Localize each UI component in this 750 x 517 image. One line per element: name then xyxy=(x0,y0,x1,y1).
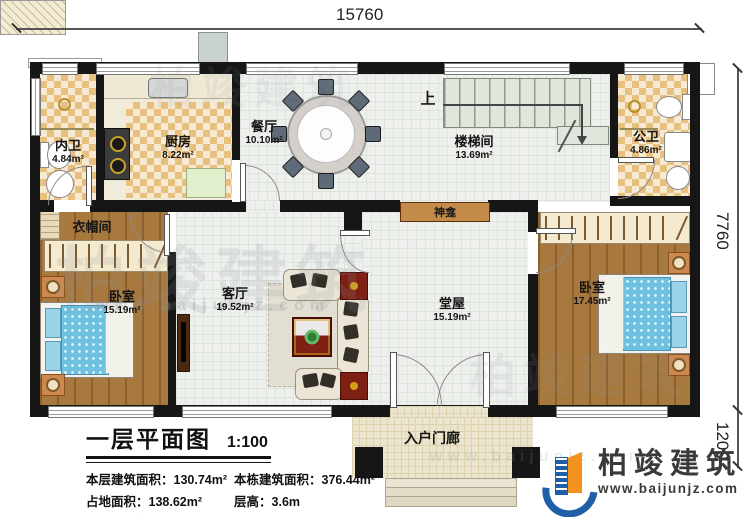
lamp xyxy=(46,280,60,294)
room-label-public-bath: 公卫 4.86m² xyxy=(630,130,662,156)
room-name: 堂屋 xyxy=(439,296,465,311)
dim-width: 15760 xyxy=(332,5,387,25)
title-block: 一层平面图 1:100 本层建筑面积：130.74m² 本栋建筑面积：376.4… xyxy=(86,420,375,517)
lamp xyxy=(672,358,686,372)
dim-height: 7760 xyxy=(712,208,732,254)
burner xyxy=(110,136,126,152)
sofa-cushion xyxy=(311,273,328,288)
stair-arrow-head xyxy=(577,136,587,145)
plant xyxy=(302,327,322,347)
kitchen-sink xyxy=(148,78,188,98)
stat-height: 层高：3.6m xyxy=(234,491,300,510)
door-panel xyxy=(340,230,370,236)
room-area: 15.19m² xyxy=(433,312,470,324)
logo-building-blue xyxy=(555,457,568,495)
pillow xyxy=(671,316,687,348)
room-area: 19.52m² xyxy=(216,302,253,314)
window xyxy=(96,63,200,75)
stair-run xyxy=(443,78,591,128)
washbasin xyxy=(666,166,690,190)
table-ornament xyxy=(350,382,358,390)
bed-right xyxy=(598,274,692,354)
room-name: 厨房 xyxy=(165,134,191,149)
room-label-dining: 餐厅 10.10m² xyxy=(245,120,282,146)
stair-arrow-line xyxy=(581,104,583,136)
sofa-cushion xyxy=(343,301,359,317)
stat-total-area: 本栋建筑面积：376.44m² xyxy=(234,469,375,488)
wall-right xyxy=(690,62,700,417)
porch-column xyxy=(512,447,540,478)
door-panel xyxy=(164,214,170,256)
window xyxy=(624,63,684,75)
stair-arrow-line xyxy=(443,104,582,106)
room-label-cloakroom: 衣帽间 xyxy=(72,221,111,236)
room-area: 15.19m² xyxy=(103,305,140,317)
pier-living-hall xyxy=(344,200,362,234)
room-area: 4.84m² xyxy=(52,154,84,166)
dining-chair xyxy=(318,79,334,95)
dining-chair xyxy=(318,173,334,189)
bath-divider xyxy=(40,128,94,130)
room-label-hall: 堂屋 15.19m² xyxy=(433,297,470,323)
passage-dining-living xyxy=(246,200,280,212)
logo-mark-icon xyxy=(542,449,592,507)
dining-table-center xyxy=(320,128,332,140)
cutting-board xyxy=(186,168,226,198)
window xyxy=(42,63,78,75)
sofa-cushion xyxy=(302,373,319,388)
room-name: 卧室 xyxy=(579,280,605,295)
room-label-kitchen: 厨房 8.22m² xyxy=(162,135,194,161)
room-area: 17.45m² xyxy=(573,296,610,308)
door-panel xyxy=(536,228,576,234)
stat-footprint: 占地面积：138.62m² xyxy=(86,491,234,510)
title-underline xyxy=(86,456,271,463)
room-label-stairwell: 楼梯间 13.69m² xyxy=(454,135,493,161)
nightstand xyxy=(41,374,65,396)
side-table xyxy=(340,272,368,300)
dim-line-top xyxy=(16,28,702,30)
sofa-cushion xyxy=(343,324,359,340)
door-panel xyxy=(618,157,654,163)
window xyxy=(31,78,41,136)
plan-scale: 1:100 xyxy=(227,434,268,452)
towel-ring xyxy=(58,98,71,111)
lamp xyxy=(46,378,60,392)
towel-ring xyxy=(628,100,641,113)
pillow xyxy=(671,281,687,313)
flue-shaft xyxy=(198,32,228,65)
entry-door-panel xyxy=(483,352,490,408)
hanger-bars xyxy=(49,244,153,268)
cloak-shelving xyxy=(40,210,60,240)
nightstand xyxy=(668,354,690,376)
coffee-table xyxy=(292,317,332,357)
door-gap xyxy=(232,160,240,202)
blanket xyxy=(61,305,109,375)
room-name: 卧室 xyxy=(109,289,135,304)
door-panel xyxy=(86,166,92,206)
hanger-diagonal xyxy=(676,216,688,240)
stairs-up-label: 上 xyxy=(420,90,435,107)
room-label-living: 客厅 19.52m² xyxy=(216,287,253,313)
company-website: www.baijunjz.com xyxy=(598,481,742,496)
window xyxy=(444,63,570,75)
room-area: 8.22m² xyxy=(162,150,194,162)
room-name: 入户门廊 xyxy=(404,430,460,446)
porch-step xyxy=(385,496,517,507)
room-area: 10.10m² xyxy=(245,135,282,147)
room-name: 公卫 xyxy=(633,129,659,144)
table-ornament xyxy=(350,282,358,290)
wall-innerbath-kitchen xyxy=(96,74,104,204)
room-area: 13.69m² xyxy=(454,150,493,162)
wall-hall-top-right xyxy=(488,200,532,212)
tv xyxy=(181,322,186,362)
toilet-bowl xyxy=(656,96,682,118)
stat-floor-area: 本层建筑面积：130.74m² xyxy=(86,469,234,488)
logo-text: 柏竣建筑 www.baijunjz.com xyxy=(598,449,742,496)
logo-building-orange xyxy=(568,452,582,493)
nightstand xyxy=(41,276,65,298)
room-label-bedroom-left: 卧室 15.19m² xyxy=(103,290,140,316)
entry-door-gap xyxy=(390,406,488,417)
shrine-shelf: 神龛 xyxy=(400,202,490,222)
sofa-cushion xyxy=(343,347,360,364)
door-panel xyxy=(240,163,246,202)
blanket xyxy=(623,277,671,351)
room-name: 客厅 xyxy=(222,286,248,301)
window xyxy=(556,406,668,418)
shrine-label: 神龛 xyxy=(434,207,456,219)
nightstand xyxy=(668,252,690,274)
room-name: 衣帽间 xyxy=(72,220,111,235)
vanity xyxy=(664,132,692,162)
chimney-hatch xyxy=(0,0,66,35)
room-name: 餐厅 xyxy=(251,119,277,134)
side-table xyxy=(340,372,368,400)
plan-note: 注：阳台算半面积，露台不算面积 xyxy=(86,513,274,517)
room-area: 4.86m² xyxy=(630,145,662,157)
door-gap xyxy=(610,158,618,196)
plan-title: 一层平面图 xyxy=(86,420,211,454)
room-label-inner-bath: 内卫 4.84m² xyxy=(52,139,84,165)
dining-chair xyxy=(365,126,381,142)
window xyxy=(182,406,332,418)
window xyxy=(246,63,358,75)
pillow xyxy=(45,308,61,338)
stove xyxy=(104,128,130,180)
room-label-porch: 入户门廊 xyxy=(404,430,460,446)
window xyxy=(48,406,154,418)
room-name: 内卫 xyxy=(55,138,81,153)
entry-door-panel xyxy=(390,352,397,408)
company-logo: 柏竣建筑 www.baijunjz.com xyxy=(542,449,742,507)
company-name: 柏竣建筑 xyxy=(598,449,742,481)
room-label-bedroom-right: 卧室 17.45m² xyxy=(573,281,610,307)
burner xyxy=(110,158,126,174)
floor-plan: 15760 7760 1200 xyxy=(0,0,750,517)
lamp xyxy=(672,256,686,270)
room-name: 楼梯间 xyxy=(454,134,493,149)
pillow xyxy=(45,341,61,371)
